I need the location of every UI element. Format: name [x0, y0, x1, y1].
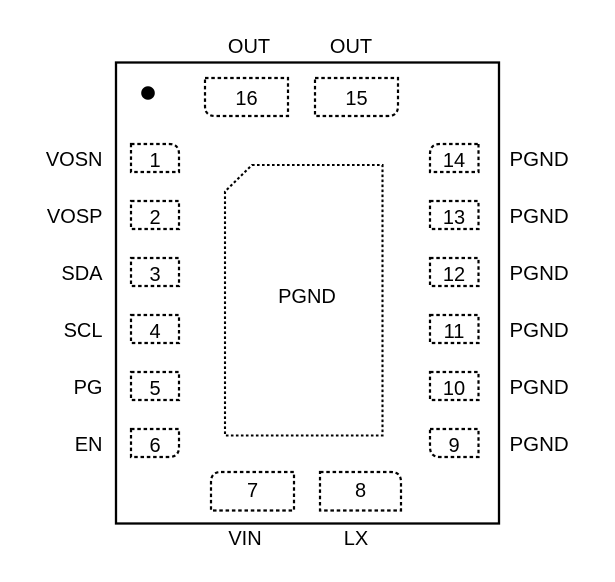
svg-text:EN: EN: [75, 434, 103, 456]
svg-text:PGND: PGND: [510, 319, 569, 342]
svg-text:11: 11: [444, 321, 465, 343]
svg-text:VOSN: VOSN: [46, 149, 103, 171]
svg-text:VIN: VIN: [228, 528, 261, 550]
svg-text:SDA: SDA: [61, 263, 103, 285]
svg-text:14: 14: [443, 150, 465, 172]
svg-text:VOSP: VOSP: [47, 206, 103, 228]
svg-text:PG: PG: [74, 377, 103, 399]
svg-text:7: 7: [247, 480, 258, 502]
svg-text:9: 9: [448, 435, 459, 457]
svg-text:5: 5: [149, 378, 160, 400]
svg-text:SCL: SCL: [64, 320, 103, 342]
svg-text:2: 2: [149, 207, 160, 229]
svg-text:8: 8: [355, 480, 366, 502]
svg-text:4: 4: [149, 321, 160, 343]
svg-text:1: 1: [149, 150, 160, 172]
svg-text:16: 16: [235, 88, 257, 110]
svg-text:PGND: PGND: [510, 205, 569, 228]
svg-text:OUT: OUT: [330, 36, 372, 58]
svg-text:PGND: PGND: [510, 433, 569, 456]
svg-text:13: 13: [443, 207, 465, 229]
svg-text:PGND: PGND: [278, 286, 336, 308]
svg-text:3: 3: [149, 264, 160, 286]
svg-text:15: 15: [345, 88, 367, 110]
svg-text:10: 10: [443, 378, 465, 400]
svg-text:OUT: OUT: [228, 36, 270, 58]
svg-text:12: 12: [443, 264, 465, 286]
svg-text:PGND: PGND: [510, 376, 569, 399]
svg-text:LX: LX: [344, 528, 368, 550]
svg-text:PGND: PGND: [510, 148, 569, 171]
svg-text:PGND: PGND: [510, 262, 569, 285]
svg-text:6: 6: [149, 435, 160, 457]
